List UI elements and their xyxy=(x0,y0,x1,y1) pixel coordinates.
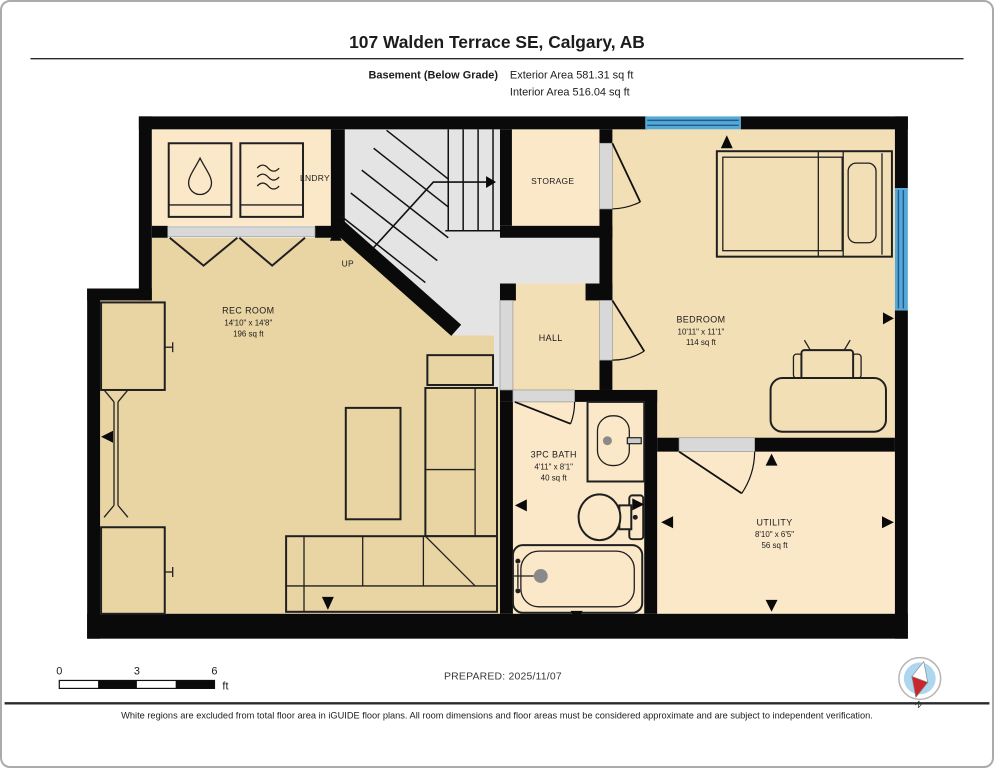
scale-bar: 0 3 6 ft xyxy=(56,665,228,692)
bed xyxy=(717,151,892,256)
rec-room-area: 196 sq ft xyxy=(233,329,264,338)
bath-label: 3PC BATH xyxy=(531,450,577,460)
bathtub-icon xyxy=(513,545,642,613)
scale-start-label: 0 xyxy=(56,665,62,677)
desk xyxy=(771,378,886,432)
storage-door-opening xyxy=(599,143,612,209)
storage-label: STORAGE xyxy=(531,176,574,186)
bedroom-dimensions: 10'11" x 11'1" xyxy=(678,327,725,336)
utility-area: 56 sq ft xyxy=(762,541,789,550)
hall-label: HALL xyxy=(539,333,563,343)
sink-vanity xyxy=(588,402,645,482)
bath-dimensions: 4'11" x 8'1" xyxy=(534,463,573,472)
laundry-opening xyxy=(168,227,315,237)
floorplan-canvas: 107 Walden Terrace SE, Calgary, AB Basem… xyxy=(2,2,992,766)
utility-label: UTILITY xyxy=(757,517,793,527)
bedroom-label: BEDROOM xyxy=(676,314,725,324)
toilet-bowl xyxy=(579,494,621,540)
laundry-label: LNDRY xyxy=(300,173,330,183)
page-title: 107 Walden Terrace SE, Calgary, AB xyxy=(349,32,645,52)
sink-faucet xyxy=(627,438,641,444)
bath-area: 40 sq ft xyxy=(541,473,568,482)
ottoman xyxy=(427,355,493,385)
rec-hall-opening xyxy=(500,300,513,390)
interior-area: Interior Area 516.04 sq ft xyxy=(510,87,630,99)
bedroom-right-window xyxy=(895,188,908,310)
utility-dimensions: 8'10" x 6'5" xyxy=(755,530,794,539)
disclaimer-text: White regions are excluded from total fl… xyxy=(121,710,873,720)
tub-drain xyxy=(534,569,548,583)
coffee-table xyxy=(346,408,401,519)
scale-mid-label: 3 xyxy=(134,665,140,677)
scale-unit-label: ft xyxy=(222,680,228,692)
washer-icon xyxy=(169,143,232,217)
sink-drain xyxy=(603,436,612,445)
exterior-area: Exterior Area 581.31 sq ft xyxy=(510,70,633,82)
rec-room-dimensions: 14'10" x 14'8" xyxy=(224,318,272,327)
bedroom-top-window xyxy=(645,116,741,129)
bedroom-area: 114 sq ft xyxy=(686,338,717,347)
bath-opening xyxy=(513,390,575,402)
rec-room-label: REC ROOM xyxy=(222,305,274,315)
stairs-up-label: UP xyxy=(342,259,354,269)
cabinet-bottom xyxy=(101,527,173,614)
dryer-icon xyxy=(240,143,303,217)
floor-label: Basement (Below Grade) xyxy=(369,70,499,82)
prepared-date: PREPARED: 2025/11/07 xyxy=(444,671,562,682)
floorplan-page: 107 Walden Terrace SE, Calgary, AB Basem… xyxy=(0,0,994,768)
cabinet-top xyxy=(101,302,173,390)
bedroom-door-opening xyxy=(599,300,612,360)
scale-end-label: 6 xyxy=(211,665,217,677)
utility-door-opening xyxy=(679,438,755,452)
